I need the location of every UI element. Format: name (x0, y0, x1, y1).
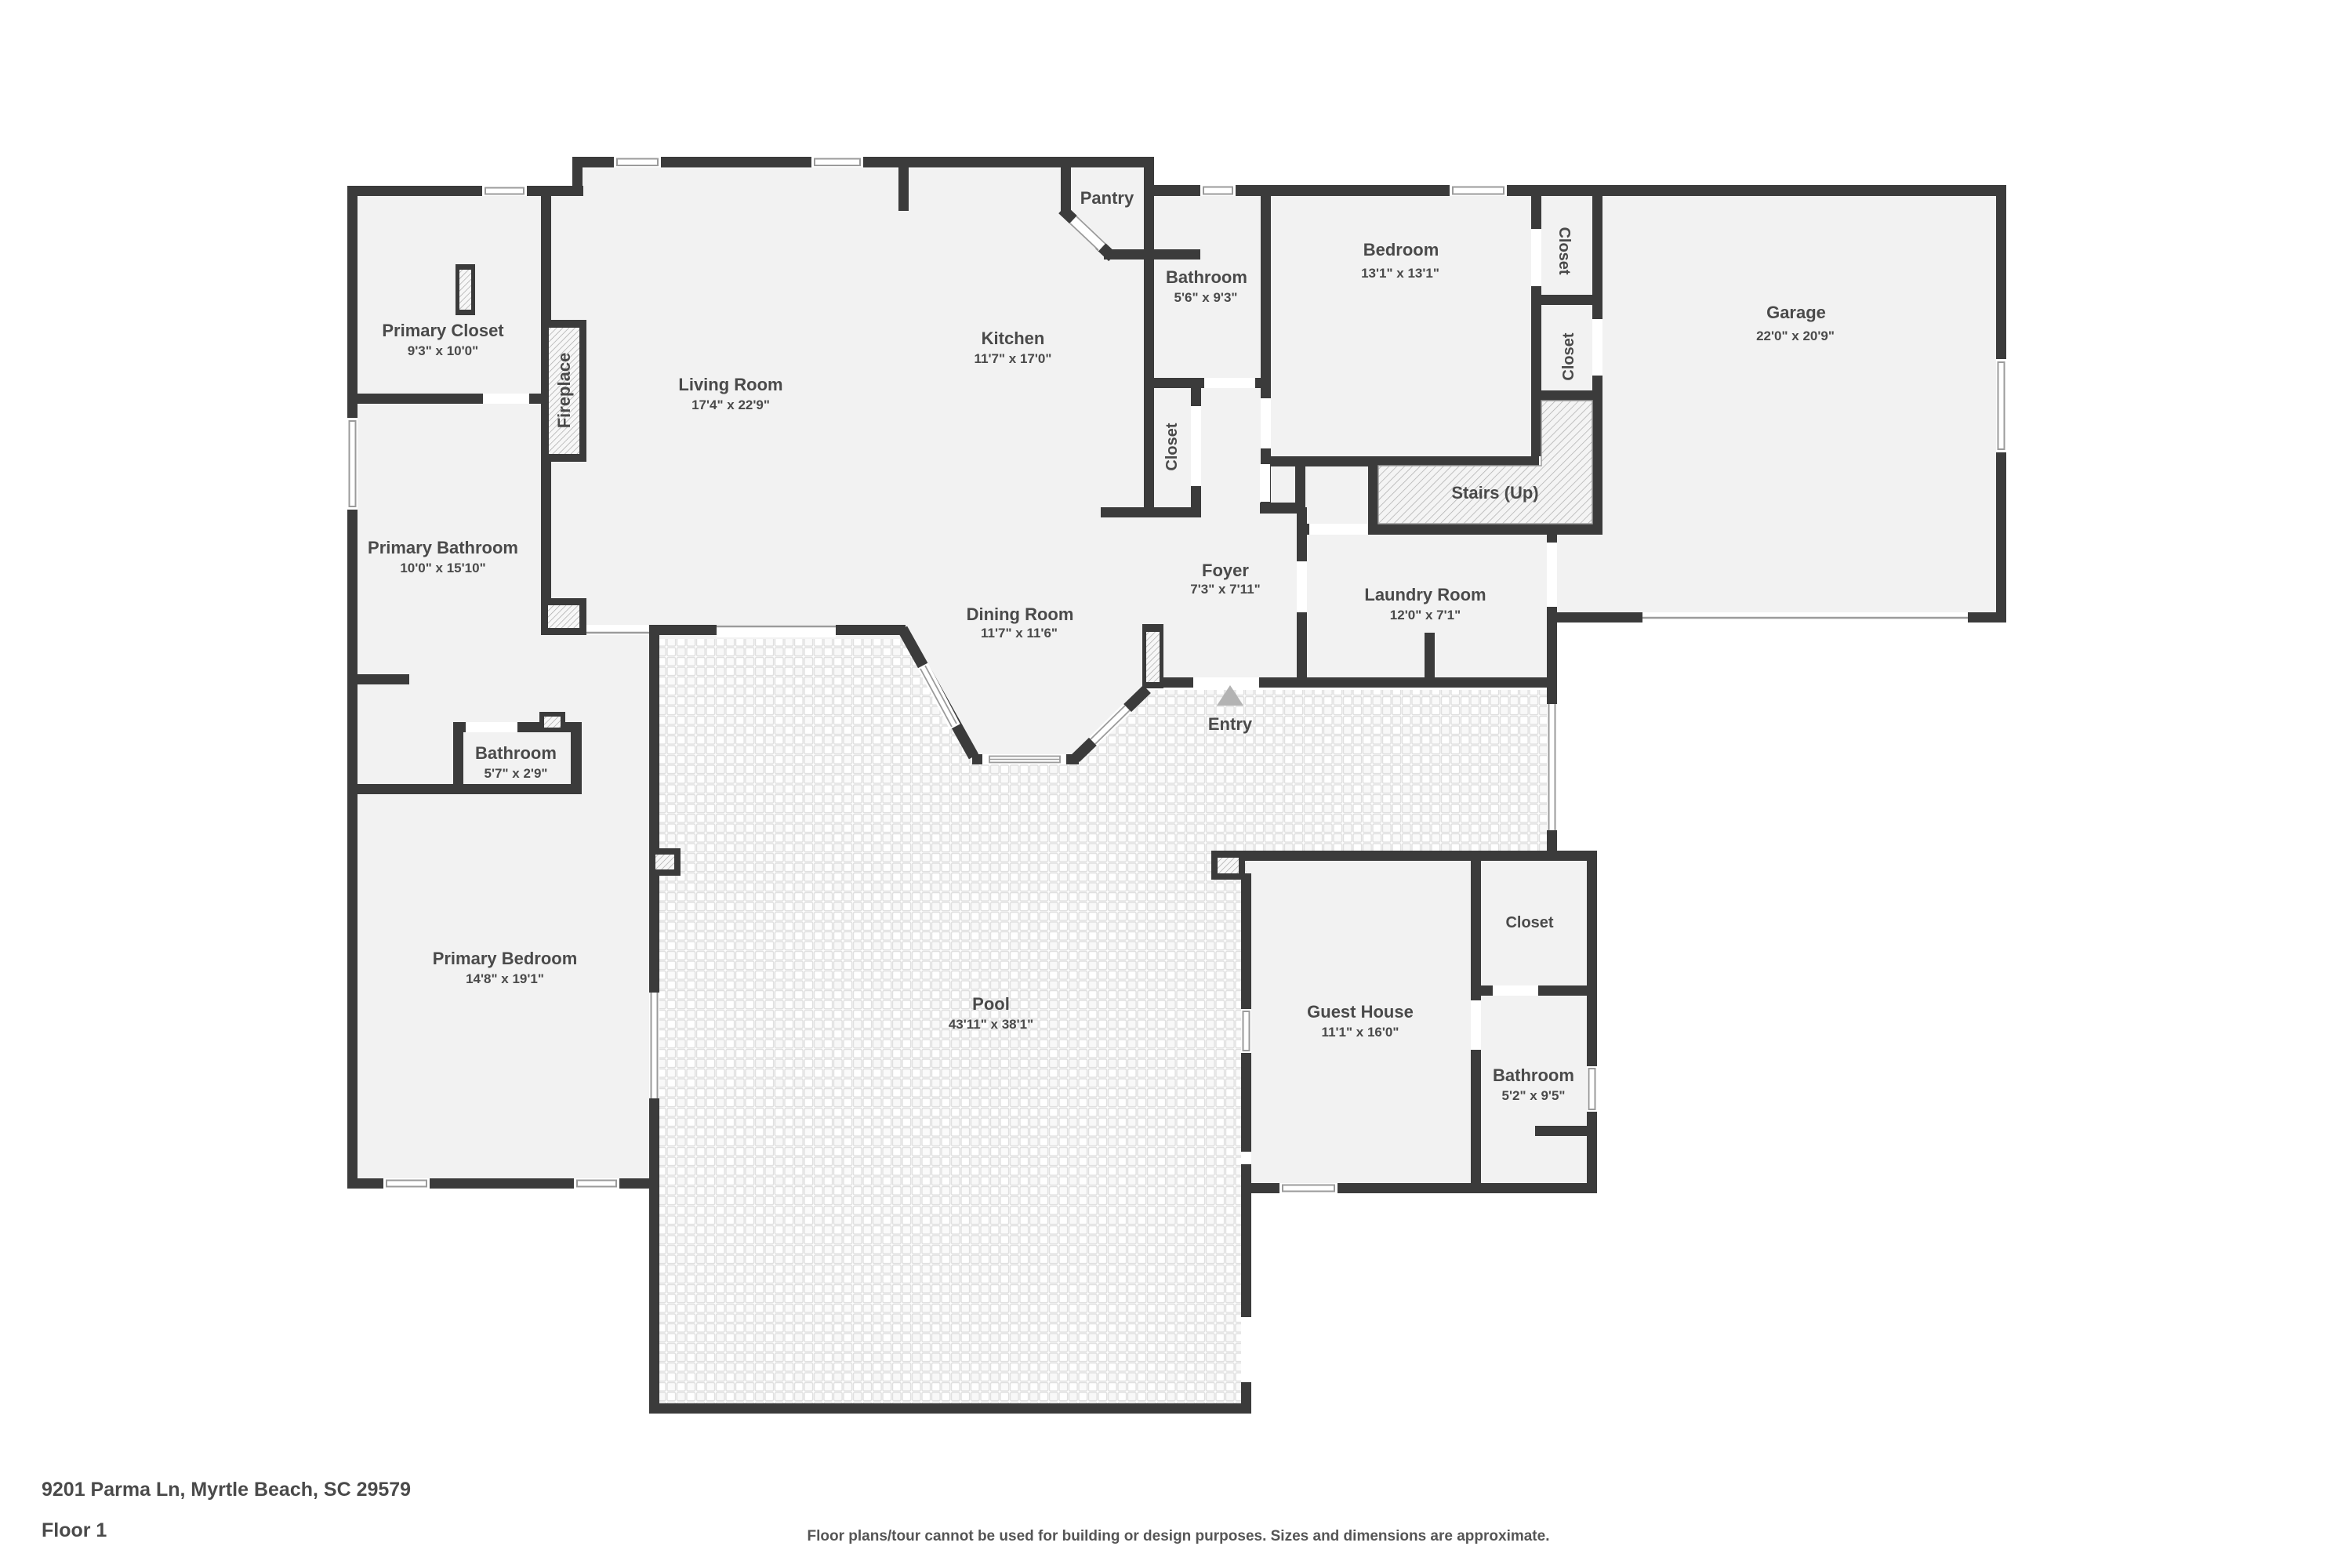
svg-text:17'4" x 22'9": 17'4" x 22'9" (691, 397, 770, 412)
svg-text:12'0" x 7'1": 12'0" x 7'1" (1390, 608, 1461, 622)
svg-text:Pool: Pool (972, 994, 1010, 1014)
svg-text:13'1" x 13'1": 13'1" x 13'1" (1361, 266, 1439, 281)
svg-text:22'0" x 20'9": 22'0" x 20'9" (1756, 328, 1835, 343)
svg-text:Bedroom: Bedroom (1363, 240, 1439, 260)
svg-text:Bathroom: Bathroom (1493, 1065, 1574, 1085)
svg-text:9'3" x 10'0": 9'3" x 10'0" (408, 343, 478, 358)
svg-text:Dining Room: Dining Room (967, 604, 1074, 624)
svg-text:5'7" x 2'9": 5'7" x 2'9" (485, 766, 548, 781)
svg-text:Closet: Closet (1560, 332, 1577, 380)
svg-text:Bathroom: Bathroom (475, 743, 557, 763)
svg-text:Closet: Closet (1505, 914, 1553, 931)
svg-text:Guest House: Guest House (1307, 1002, 1414, 1022)
svg-text:Stairs (Up): Stairs (Up) (1451, 483, 1538, 503)
svg-text:Primary Bathroom: Primary Bathroom (368, 538, 518, 557)
svg-text:7'3" x 7'11": 7'3" x 7'11" (1190, 582, 1260, 597)
svg-text:5'2" x 9'5": 5'2" x 9'5" (1502, 1088, 1566, 1103)
svg-text:Foyer: Foyer (1202, 561, 1249, 580)
svg-text:Entry: Entry (1208, 714, 1253, 734)
svg-text:Floor 1: Floor 1 (42, 1519, 107, 1541)
svg-text:Closet: Closet (1163, 423, 1181, 470)
svg-text:11'1" x 16'0": 11'1" x 16'0" (1322, 1025, 1399, 1040)
svg-text:Floor plans/tour cannot be use: Floor plans/tour cannot be used for buil… (808, 1528, 1550, 1544)
svg-text:9201 Parma Ln, Myrtle Beach, S: 9201 Parma Ln, Myrtle Beach, SC 29579 (42, 1479, 411, 1501)
svg-text:Primary Bedroom: Primary Bedroom (433, 949, 578, 968)
svg-text:Living Room: Living Room (678, 375, 782, 394)
svg-text:11'7" x 11'6": 11'7" x 11'6" (981, 626, 1058, 641)
svg-text:Closet: Closet (1555, 227, 1573, 274)
svg-text:Laundry Room: Laundry Room (1364, 585, 1486, 604)
svg-text:Bathroom: Bathroom (1166, 267, 1247, 287)
svg-text:Kitchen: Kitchen (982, 328, 1045, 348)
svg-text:Primary Closet: Primary Closet (382, 321, 504, 340)
svg-text:14'8" x 19'1": 14'8" x 19'1" (466, 971, 544, 986)
svg-text:Garage: Garage (1766, 303, 1826, 322)
svg-text:Pantry: Pantry (1080, 188, 1134, 208)
svg-text:Fireplace: Fireplace (554, 353, 574, 429)
svg-text:10'0" x 15'10": 10'0" x 15'10" (400, 561, 485, 575)
svg-text:43'11" x 38'1": 43'11" x 38'1" (949, 1017, 1033, 1032)
svg-text:11'7" x 17'0": 11'7" x 17'0" (975, 351, 1052, 366)
svg-text:5'6" x 9'3": 5'6" x 9'3" (1174, 290, 1238, 305)
